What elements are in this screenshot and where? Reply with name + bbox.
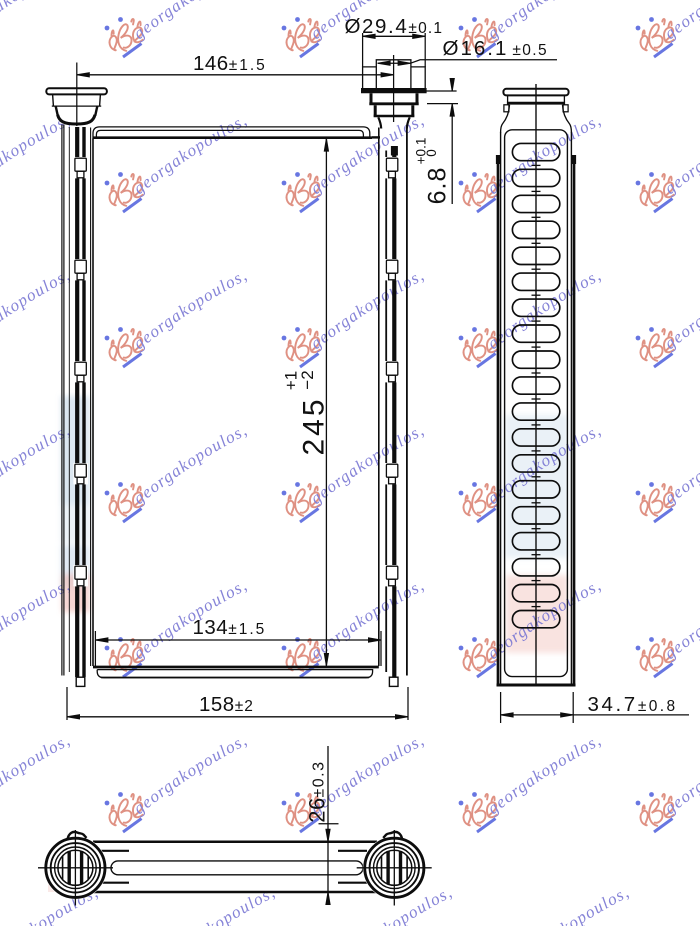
svg-text:26: 26 <box>305 797 330 822</box>
svg-text:±0.3: ±0.3 <box>311 760 328 797</box>
svg-text:0: 0 <box>424 149 439 157</box>
svg-text:6.8: 6.8 <box>424 167 452 205</box>
svg-text:−2: −2 <box>298 370 317 389</box>
svg-text:245: 245 <box>298 396 331 455</box>
